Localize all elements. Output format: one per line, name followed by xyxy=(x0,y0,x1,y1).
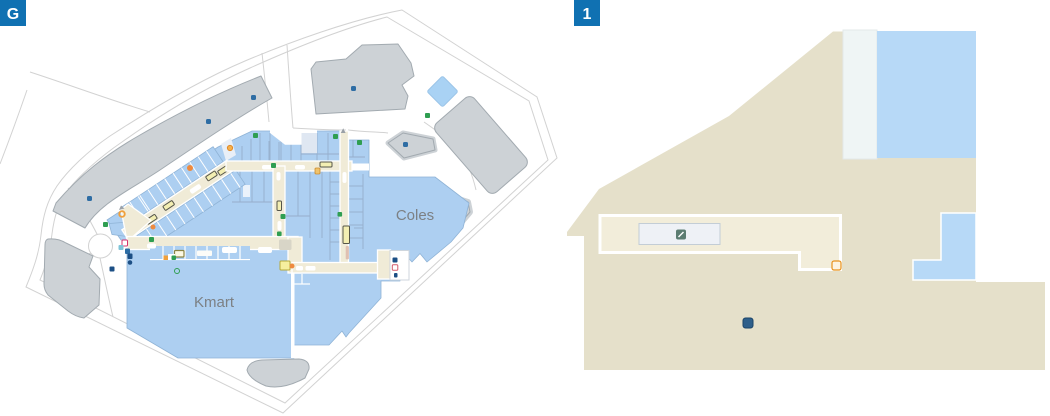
svg-text:Coles: Coles xyxy=(396,207,434,224)
svg-text:G: G xyxy=(7,6,19,23)
svg-text:Kmart: Kmart xyxy=(194,294,235,311)
svg-text:1: 1 xyxy=(583,6,592,23)
